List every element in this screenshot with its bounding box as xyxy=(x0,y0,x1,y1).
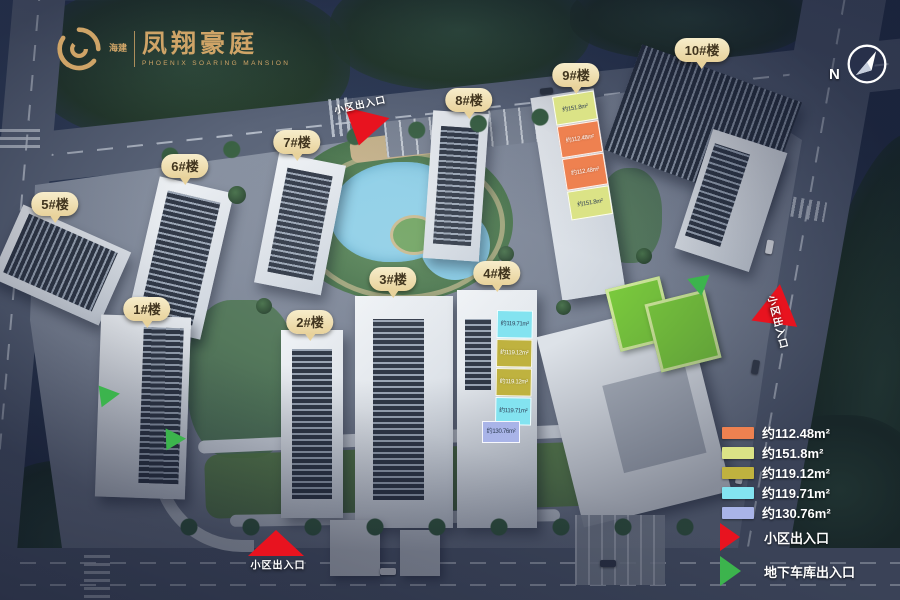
legend-swatch xyxy=(722,507,754,519)
building-label-9: 9#楼 xyxy=(552,63,599,87)
legend-row: 约130.76m² xyxy=(722,503,831,522)
legend-row: 约112.48m² xyxy=(722,423,830,442)
crosswalk xyxy=(84,552,110,598)
tree xyxy=(256,298,272,314)
unit-area: 约112.48m² xyxy=(557,120,603,158)
legend-label: 约119.71m² xyxy=(762,483,830,502)
legend-swatch xyxy=(722,467,754,479)
tree xyxy=(228,186,246,204)
building-1 xyxy=(95,314,191,499)
site-plan-canvas: 约151.8m² 约112.48m² 约112.48m² 约151.8m² 约1… xyxy=(0,0,900,600)
tree xyxy=(498,246,514,262)
building-label-2: 2#楼 xyxy=(286,310,333,334)
legend-label: 约151.8m² xyxy=(762,443,823,462)
tree xyxy=(556,300,571,315)
legend-red-arrow-icon xyxy=(720,523,740,551)
tree xyxy=(636,248,652,264)
legend-label: 约119.12m² xyxy=(762,463,830,482)
logo-divider xyxy=(134,31,135,67)
brand-small-text: 海建 xyxy=(109,44,127,54)
compass-north-label: N xyxy=(829,66,840,83)
building-label-1: 1#楼 xyxy=(123,297,170,321)
legend-green-arrow-icon xyxy=(720,556,741,586)
building-label-5: 5#楼 xyxy=(31,192,78,216)
legend-row: 地下车库出入口 xyxy=(720,556,855,586)
entrance-arrow-bottom xyxy=(248,530,304,556)
building-label-6: 6#楼 xyxy=(161,154,208,178)
building-label-7: 7#楼 xyxy=(273,130,320,154)
garage-entrance-arrow xyxy=(166,428,187,451)
unit-plan-building-4: 约119.71m² 约119.12m² 约119.12m² 约119.71m² xyxy=(495,310,533,426)
legend-row: 约119.12m² xyxy=(722,463,830,482)
legend-swatch xyxy=(722,487,754,499)
unit-area: 约112.48m² xyxy=(562,153,608,191)
project-title: 凤翔豪庭 xyxy=(142,32,290,57)
building-3 xyxy=(355,296,453,528)
unit-area: 约130.76m² xyxy=(482,421,520,443)
entrance-label-bottom: 小区出入口 xyxy=(251,557,306,572)
legend-label: 地下车库出入口 xyxy=(764,562,855,581)
legend-row: 小区出入口 xyxy=(720,523,829,551)
legend-label: 小区出入口 xyxy=(764,528,829,547)
legend-row: 约119.71m² xyxy=(722,483,830,502)
compass-icon xyxy=(845,42,889,86)
brand-logo: 海建 凤翔豪庭 PHOENIX SOARING MANSION xyxy=(56,26,290,72)
building-label-4: 4#楼 xyxy=(473,261,520,285)
legend-row: 约151.8m² xyxy=(722,443,823,462)
building-label-8: 8#楼 xyxy=(445,88,492,112)
legend-label: 约112.48m² xyxy=(762,423,830,442)
unit-area: 约119.12m² xyxy=(495,368,531,397)
legend-swatch xyxy=(722,427,754,439)
phoenix-logo-icon xyxy=(56,26,102,72)
unit-area: 约119.71m² xyxy=(497,310,533,339)
garage-entrance-arrow xyxy=(99,383,122,408)
building-label-10: 10#楼 xyxy=(675,38,730,62)
unit-area: 约119.12m² xyxy=(496,339,532,368)
legend-label: 约130.76m² xyxy=(762,503,831,522)
project-subtitle: PHOENIX SOARING MANSION xyxy=(142,60,290,67)
building-label-3: 3#楼 xyxy=(369,267,416,291)
legend-swatch xyxy=(722,447,754,459)
crosswalk xyxy=(0,128,40,148)
car xyxy=(380,568,396,575)
car xyxy=(600,560,616,567)
building-2 xyxy=(281,330,343,518)
